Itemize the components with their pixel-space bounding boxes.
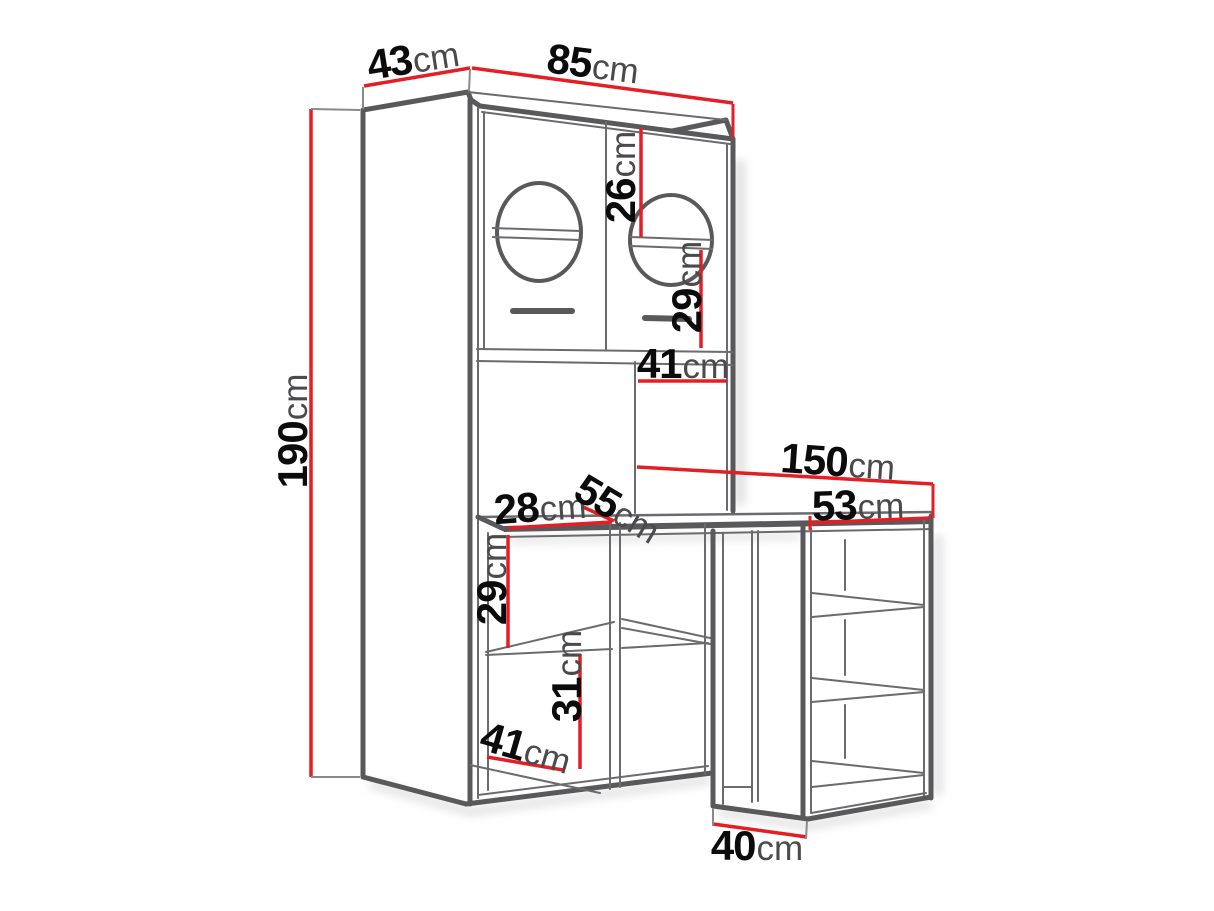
furniture-line-drawing (0, 0, 1214, 911)
door-handles (513, 311, 689, 319)
shadow-lines (370, 160, 938, 826)
porthole-circles (497, 183, 712, 285)
furniture-dimension-diagram: 43cm 85cm 26cm 29cm 41cm 190cm 150cm 53c… (0, 0, 1214, 911)
desk-leg-panel (713, 531, 808, 819)
porthole-shelf-lines (492, 228, 713, 249)
wardrobe-outline (363, 92, 733, 804)
dimension-lines (311, 68, 933, 837)
lower-left-shelving (470, 523, 710, 795)
side-shelf-unit (803, 516, 931, 819)
